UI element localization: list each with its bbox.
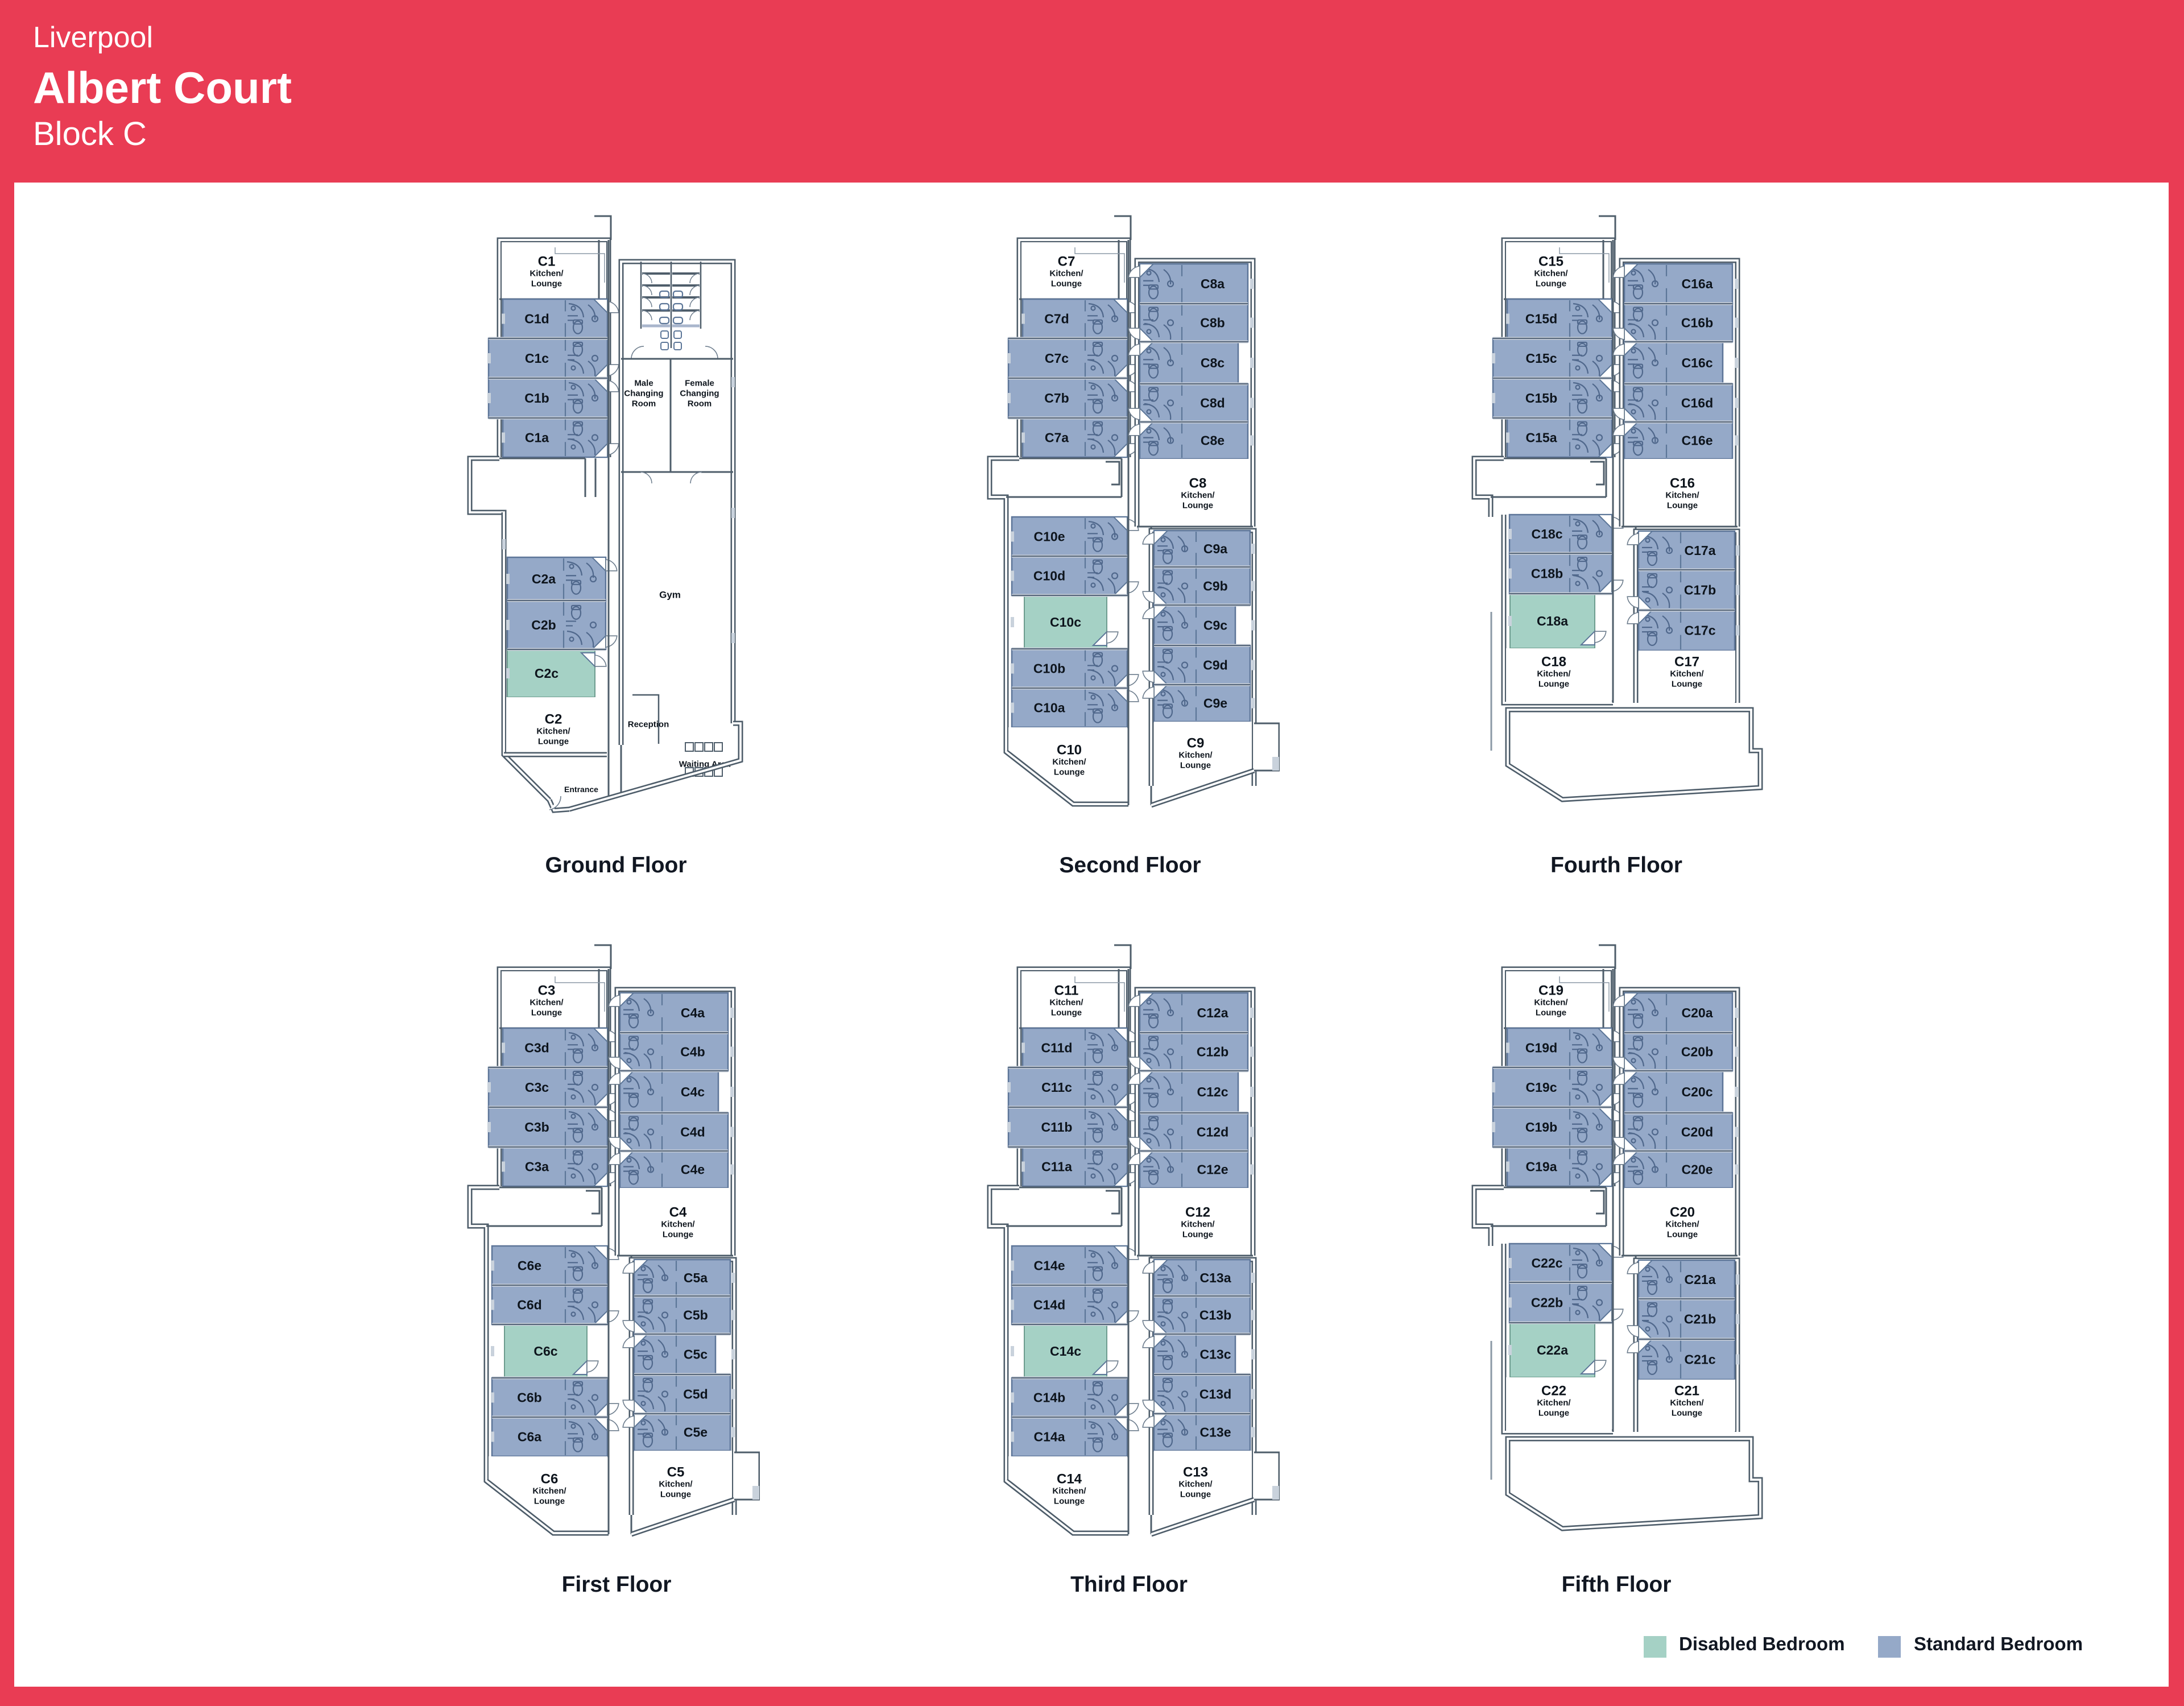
svg-text:C22a: C22a <box>1537 1343 1568 1357</box>
svg-text:C8b: C8b <box>1200 316 1225 330</box>
svg-text:C8d: C8d <box>1200 396 1225 411</box>
svg-text:C16a: C16a <box>1682 276 1713 291</box>
svg-text:C2c: C2c <box>535 666 559 681</box>
svg-text:Lounge: Lounge <box>1538 1409 1569 1418</box>
svg-text:C19a: C19a <box>1526 1160 1557 1174</box>
svg-text:C9: C9 <box>1187 736 1205 751</box>
svg-text:Lounge: Lounge <box>660 1490 691 1500</box>
svg-text:Kitchen/: Kitchen/ <box>1537 669 1571 679</box>
svg-text:Kitchen/: Kitchen/ <box>1178 751 1213 760</box>
svg-text:C22: C22 <box>1541 1384 1566 1399</box>
svg-text:Entrance: Entrance <box>564 785 598 794</box>
svg-text:C7: C7 <box>1058 254 1076 270</box>
svg-text:C19c: C19c <box>1526 1080 1557 1095</box>
svg-text:C15c: C15c <box>1526 351 1557 366</box>
svg-text:Lounge: Lounge <box>1054 768 1085 777</box>
svg-text:C5a: C5a <box>684 1270 708 1285</box>
svg-text:C5b: C5b <box>683 1308 708 1323</box>
svg-text:C2a: C2a <box>532 572 556 586</box>
svg-text:C14e: C14e <box>1034 1258 1065 1273</box>
svg-text:C15b: C15b <box>1525 391 1557 405</box>
svg-text:C9c: C9c <box>1203 618 1227 633</box>
svg-text:Kitchen/: Kitchen/ <box>1670 669 1704 679</box>
svg-text:Lounge: Lounge <box>1538 680 1569 689</box>
svg-text:C21c: C21c <box>1685 1352 1716 1367</box>
svg-text:Kitchen/: Kitchen/ <box>1181 491 1215 500</box>
svg-text:C7b: C7b <box>1044 391 1069 405</box>
svg-text:C3b: C3b <box>524 1120 549 1134</box>
svg-text:C17: C17 <box>1674 655 1699 670</box>
svg-text:C14b: C14b <box>1033 1390 1065 1405</box>
svg-text:C14: C14 <box>1057 1472 1082 1487</box>
svg-text:C1: C1 <box>538 254 556 270</box>
svg-text:C6c: C6c <box>533 1344 557 1359</box>
svg-text:C3d: C3d <box>524 1041 549 1055</box>
svg-text:C9b: C9b <box>1203 579 1227 594</box>
svg-text:Kitchen/: Kitchen/ <box>530 269 564 279</box>
svg-text:Lounge: Lounge <box>1054 1497 1085 1506</box>
svg-text:Lounge: Lounge <box>534 1497 565 1506</box>
svg-text:C11c: C11c <box>1041 1080 1072 1095</box>
svg-text:C4a: C4a <box>681 1005 705 1020</box>
svg-text:C5c: C5c <box>684 1347 708 1362</box>
svg-text:C1c: C1c <box>525 351 549 366</box>
svg-text:C14d: C14d <box>1033 1298 1065 1312</box>
svg-text:Lounge: Lounge <box>1180 1490 1211 1500</box>
svg-text:C14c: C14c <box>1050 1344 1081 1359</box>
svg-text:C16b: C16b <box>1681 316 1713 330</box>
svg-text:C21b: C21b <box>1684 1312 1716 1327</box>
svg-text:Reception: Reception <box>628 720 669 730</box>
svg-text:C6a: C6a <box>518 1430 541 1444</box>
svg-text:C1d: C1d <box>524 312 549 326</box>
svg-text:Kitchen/: Kitchen/ <box>659 1480 693 1489</box>
svg-text:C18a: C18a <box>1537 614 1568 628</box>
svg-text:Changing: Changing <box>680 389 719 399</box>
svg-text:C19: C19 <box>1538 983 1563 999</box>
svg-text:C14a: C14a <box>1034 1430 1065 1444</box>
svg-text:Lounge: Lounge <box>1536 1008 1566 1018</box>
svg-text:C10c: C10c <box>1050 615 1081 630</box>
svg-text:C1a: C1a <box>525 430 549 445</box>
svg-text:Lounge: Lounge <box>531 279 562 289</box>
svg-text:C3: C3 <box>538 983 556 999</box>
svg-text:Lounge: Lounge <box>1536 279 1566 289</box>
svg-text:C12d: C12d <box>1197 1125 1228 1140</box>
svg-text:Kitchen/: Kitchen/ <box>1665 1220 1699 1229</box>
svg-text:Kitchen/: Kitchen/ <box>530 998 564 1008</box>
svg-text:C7a: C7a <box>1045 430 1069 445</box>
svg-text:C17a: C17a <box>1685 543 1716 558</box>
svg-text:Lounge: Lounge <box>1667 501 1698 511</box>
svg-text:Lounge: Lounge <box>663 1230 693 1240</box>
svg-text:Lounge: Lounge <box>538 737 569 747</box>
svg-text:C10e: C10e <box>1034 529 1065 544</box>
svg-text:C8a: C8a <box>1201 276 1225 291</box>
svg-text:C15a: C15a <box>1526 430 1557 445</box>
svg-text:C5d: C5d <box>683 1387 708 1402</box>
svg-text:C20b: C20b <box>1681 1045 1713 1059</box>
svg-text:Gym: Gym <box>659 590 681 601</box>
svg-text:C16: C16 <box>1670 476 1695 491</box>
svg-text:C18: C18 <box>1541 655 1566 670</box>
svg-text:Kitchen/: Kitchen/ <box>1049 998 1083 1008</box>
svg-text:C15d: C15d <box>1525 312 1557 326</box>
svg-text:C7d: C7d <box>1044 312 1069 326</box>
svg-text:C17c: C17c <box>1685 623 1716 638</box>
svg-text:C10d: C10d <box>1033 569 1065 583</box>
svg-text:C4d: C4d <box>680 1125 705 1140</box>
svg-text:Lounge: Lounge <box>1051 1008 1082 1018</box>
svg-text:C9a: C9a <box>1203 541 1227 556</box>
svg-text:Kitchen/: Kitchen/ <box>1049 269 1083 279</box>
svg-text:C19d: C19d <box>1525 1041 1557 1055</box>
svg-text:C6: C6 <box>541 1472 559 1487</box>
svg-text:C22c: C22c <box>1532 1256 1563 1270</box>
svg-text:C16e: C16e <box>1682 433 1713 448</box>
svg-text:C5e: C5e <box>684 1425 708 1440</box>
svg-text:C13: C13 <box>1183 1465 1208 1480</box>
svg-text:C13d: C13d <box>1199 1387 1231 1402</box>
svg-text:Room: Room <box>688 399 712 409</box>
svg-text:C20d: C20d <box>1681 1125 1713 1140</box>
svg-text:Female: Female <box>685 379 714 388</box>
svg-text:Kitchen/: Kitchen/ <box>1178 1480 1213 1489</box>
svg-text:C6e: C6e <box>518 1258 541 1273</box>
svg-text:Kitchen/: Kitchen/ <box>1052 757 1086 767</box>
svg-text:Kitchen/: Kitchen/ <box>532 1486 566 1496</box>
svg-text:C3a: C3a <box>525 1160 549 1174</box>
svg-text:C16d: C16d <box>1681 396 1713 411</box>
svg-text:C12a: C12a <box>1197 1005 1228 1020</box>
svg-text:C20: C20 <box>1670 1205 1695 1220</box>
svg-text:C5: C5 <box>667 1465 685 1480</box>
svg-text:Kitchen/: Kitchen/ <box>661 1220 695 1229</box>
svg-text:Kitchen/: Kitchen/ <box>1670 1398 1704 1408</box>
svg-text:C15: C15 <box>1538 254 1563 270</box>
svg-text:Lounge: Lounge <box>1180 761 1211 771</box>
svg-text:Lounge: Lounge <box>1667 1230 1698 1240</box>
svg-text:C12c: C12c <box>1197 1084 1228 1099</box>
svg-text:C8c: C8c <box>1201 355 1225 370</box>
svg-text:Kitchen/: Kitchen/ <box>536 727 570 736</box>
svg-text:C10: C10 <box>1057 743 1082 758</box>
svg-text:Kitchen/: Kitchen/ <box>1665 491 1699 500</box>
svg-text:C2: C2 <box>545 712 562 727</box>
svg-text:C8e: C8e <box>1201 433 1225 448</box>
svg-text:C4c: C4c <box>681 1084 705 1099</box>
svg-text:C20e: C20e <box>1682 1162 1713 1177</box>
svg-text:C13e: C13e <box>1200 1425 1231 1440</box>
svg-text:Kitchen/: Kitchen/ <box>1537 1398 1571 1408</box>
svg-text:C11a: C11a <box>1041 1160 1072 1174</box>
svg-text:Lounge: Lounge <box>1672 680 1702 689</box>
svg-text:C6b: C6b <box>517 1390 541 1405</box>
svg-text:C18b: C18b <box>1531 566 1563 581</box>
svg-text:Lounge: Lounge <box>1182 1230 1213 1240</box>
svg-text:C12b: C12b <box>1197 1045 1228 1059</box>
svg-text:C11: C11 <box>1054 983 1079 999</box>
svg-text:C1b: C1b <box>524 391 549 405</box>
svg-text:C13a: C13a <box>1200 1270 1231 1285</box>
svg-text:C21: C21 <box>1674 1384 1699 1399</box>
svg-text:C17b: C17b <box>1684 583 1716 598</box>
svg-text:C11d: C11d <box>1041 1041 1073 1055</box>
svg-text:C20c: C20c <box>1682 1084 1713 1099</box>
svg-text:C4: C4 <box>669 1205 687 1220</box>
svg-text:C9d: C9d <box>1203 658 1227 673</box>
svg-text:C7c: C7c <box>1045 351 1069 366</box>
svg-text:Lounge: Lounge <box>1182 501 1213 511</box>
svg-text:C4e: C4e <box>681 1162 705 1177</box>
svg-text:Room: Room <box>632 399 656 409</box>
svg-text:C6d: C6d <box>517 1298 541 1312</box>
svg-text:C20a: C20a <box>1682 1005 1713 1020</box>
svg-text:Lounge: Lounge <box>531 1008 562 1018</box>
svg-text:C12: C12 <box>1185 1205 1210 1220</box>
svg-text:C2b: C2b <box>531 618 556 632</box>
svg-text:C22b: C22b <box>1531 1295 1563 1310</box>
svg-text:Kitchen/: Kitchen/ <box>1534 998 1568 1008</box>
svg-text:C9e: C9e <box>1203 696 1227 711</box>
svg-text:C4b: C4b <box>680 1045 705 1059</box>
svg-text:C19b: C19b <box>1525 1120 1557 1134</box>
svg-text:C13b: C13b <box>1199 1308 1231 1323</box>
svg-text:C11b: C11b <box>1041 1120 1073 1134</box>
svg-text:C21a: C21a <box>1685 1272 1716 1287</box>
svg-text:C18c: C18c <box>1532 527 1563 541</box>
svg-text:Male: Male <box>634 379 653 388</box>
svg-text:C10b: C10b <box>1033 661 1065 676</box>
svg-text:C13c: C13c <box>1200 1347 1231 1362</box>
svg-text:Lounge: Lounge <box>1672 1409 1702 1418</box>
svg-text:C8: C8 <box>1189 476 1207 491</box>
svg-text:Kitchen/: Kitchen/ <box>1052 1486 1086 1496</box>
svg-text:C16c: C16c <box>1682 355 1713 370</box>
svg-text:Lounge: Lounge <box>1051 279 1082 289</box>
svg-text:Kitchen/: Kitchen/ <box>1534 269 1568 279</box>
svg-text:C3c: C3c <box>525 1080 549 1095</box>
svg-text:Kitchen/: Kitchen/ <box>1181 1220 1215 1229</box>
svg-text:Changing: Changing <box>624 389 663 399</box>
svg-text:C10a: C10a <box>1034 701 1065 715</box>
svg-text:C12e: C12e <box>1197 1162 1228 1177</box>
